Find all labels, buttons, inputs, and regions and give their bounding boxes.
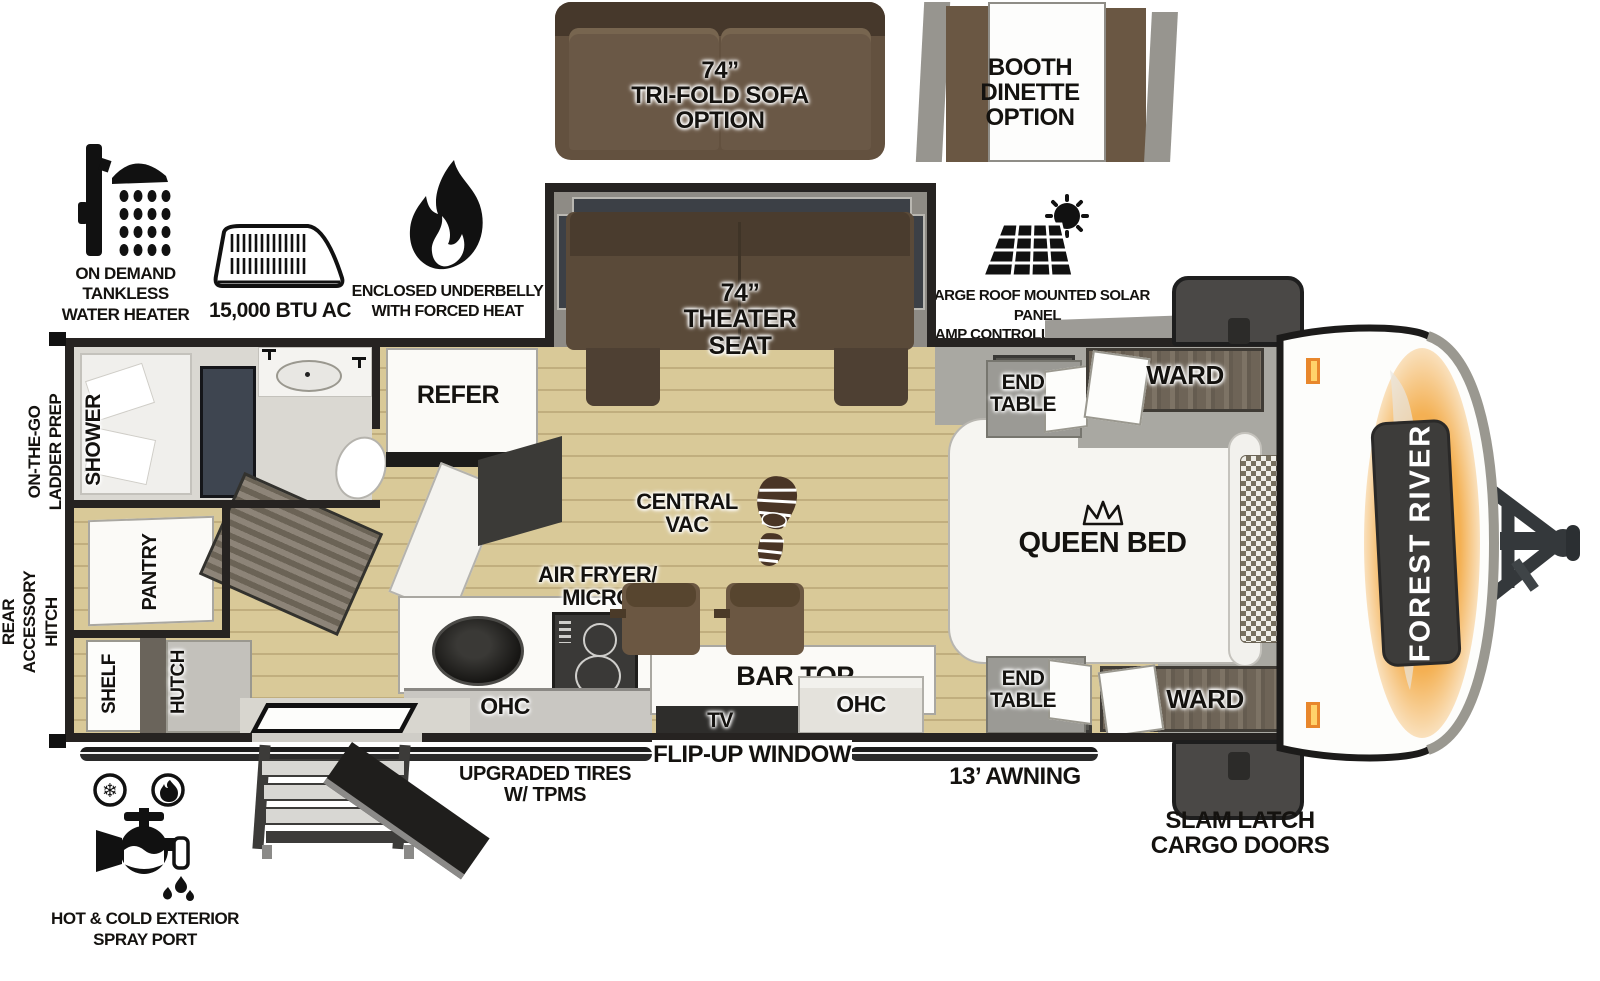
spray-port-icon: ❄ — [86, 772, 206, 902]
entry-threshold — [252, 733, 422, 742]
entry-mat — [250, 703, 418, 734]
wall-segment — [222, 508, 230, 636]
hutch-post — [140, 636, 166, 733]
hutch-label: HUTCH — [167, 637, 191, 727]
spray-port-label: HOT & COLD EXTERIOR SPRAY PORT — [30, 908, 260, 951]
shower-label: SHOWER — [81, 385, 107, 495]
solar-panel-icon — [975, 194, 1095, 282]
pantry-label: PANTRY — [137, 517, 163, 627]
trifold-sofa-label: 74” TRI-FOLD SOFA OPTION — [590, 58, 850, 134]
wall-segment — [545, 183, 936, 192]
rear-receiver-tab — [49, 734, 66, 748]
slam-latch-label: SLAM LATCH CARGO DOORS — [1135, 808, 1345, 858]
boot-print-icon — [743, 474, 804, 571]
ward-bottom-label: WARD — [1140, 686, 1270, 713]
upgraded-tires-label: UPGRADED TIRES W/ TPMS — [450, 764, 640, 806]
underbelly-label: ENCLOSED UNDERBELLY WITH FORCED HEAT — [345, 282, 550, 322]
front-cap: FOREST RIVER — [1270, 310, 1580, 780]
theater-console — [586, 348, 660, 406]
refer-label: REFER — [398, 382, 518, 408]
theater-seat-label: 74” THEATER SEAT — [650, 280, 830, 359]
bath-sink-drain — [305, 372, 310, 377]
booth-wall-panel — [1144, 12, 1178, 162]
booth-dinette-label: BOOTH DINETTE OPTION — [945, 55, 1115, 131]
rear-receiver-tab — [49, 332, 66, 346]
bar-stool — [726, 583, 804, 655]
wall-segment — [65, 500, 380, 508]
ohc-bedroom-label: OHC — [808, 692, 914, 716]
water-heater-label: ON DEMAND TANKLESS WATER HEATER — [38, 264, 213, 325]
wall-segment — [65, 338, 554, 347]
faucet-icon — [352, 357, 366, 360]
ladder-prep-label: ON-THE-GO LADDER PREP — [23, 377, 67, 527]
ac-unit-icon — [210, 222, 348, 300]
flip-up-window-label: FLIP-UP WINDOW — [652, 740, 852, 769]
tv-label: TV — [680, 710, 760, 732]
crown-icon — [1080, 498, 1126, 528]
awning-rail — [850, 747, 1098, 761]
wall-segment — [372, 347, 380, 429]
bar-stool — [622, 583, 700, 655]
flame-icon — [402, 158, 494, 284]
end-table-top-label: END TABLE — [968, 372, 1078, 416]
central-vac-label: CENTRAL VAC — [612, 490, 762, 536]
ward-top-label: WARD — [1120, 362, 1250, 389]
queen-bed-label: QUEEN BED — [985, 528, 1220, 558]
shelf-label: SHELF — [98, 639, 122, 729]
faucet-icon — [262, 349, 276, 352]
end-table-bottom-label: END TABLE — [968, 668, 1078, 712]
theater-console — [834, 348, 908, 406]
wall-segment — [65, 630, 230, 638]
shower-icon — [78, 140, 190, 262]
wall-segment — [545, 183, 554, 347]
wall-segment — [927, 183, 936, 347]
ac-label: 15,000 BTU AC — [190, 300, 370, 322]
forest-river-badge: FOREST RIVER — [1405, 424, 1437, 662]
kitchen-sink — [432, 616, 524, 686]
rv-floorplan-diagram: 74” TRI-FOLD SOFA OPTION BOOTH DINETTE O… — [0, 0, 1600, 981]
svg-text:❄: ❄ — [102, 780, 118, 802]
awning-label: 13’ AWNING — [930, 764, 1100, 789]
rear-hitch-label: REAR ACCESSORY HITCH — [0, 542, 61, 702]
